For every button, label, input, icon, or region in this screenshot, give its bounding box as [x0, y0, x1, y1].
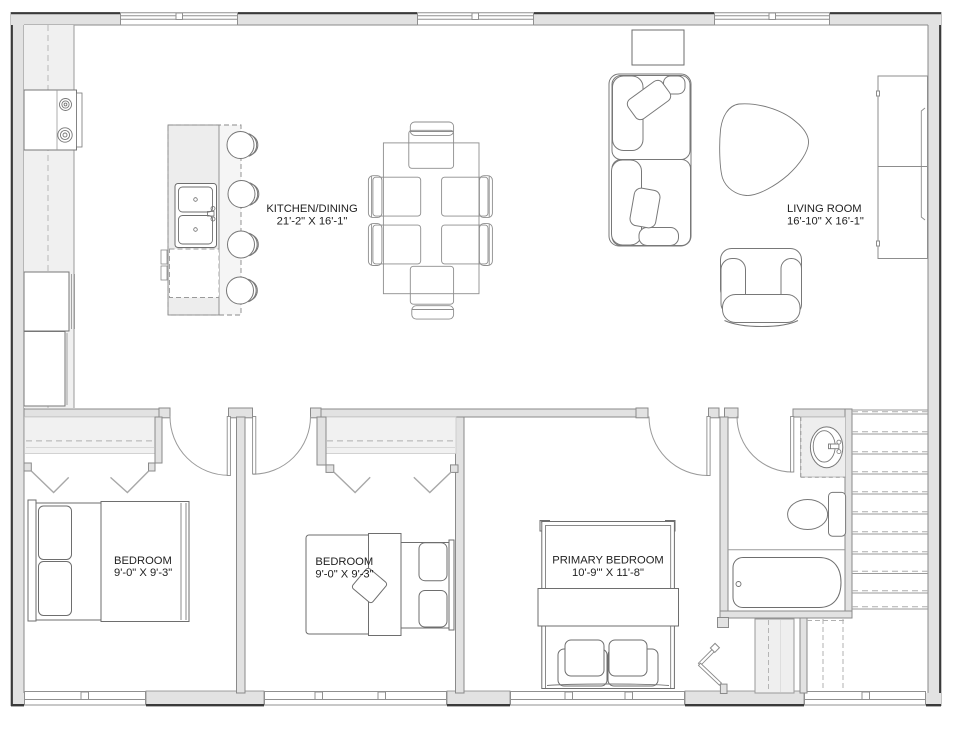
svg-text:10'-9"' X 11'-8": 10'-9"' X 11'-8" — [572, 567, 644, 579]
svg-text:9'-0" X 9'-3": 9'-0" X 9'-3" — [114, 567, 172, 579]
svg-text:21'-2" X 16'-1": 21'-2" X 16'-1" — [277, 216, 348, 228]
svg-text:LIVING ROOM: LIVING ROOM — [787, 203, 862, 215]
svg-text:9'-0" X 9'-3": 9'-0" X 9'-3" — [315, 568, 373, 580]
svg-text:KITCHEN/DINING: KITCHEN/DINING — [266, 203, 357, 215]
svg-text:PRIMARY BEDROOM: PRIMARY BEDROOM — [552, 555, 663, 567]
svg-text:16'-10" X 16'-1": 16'-10" X 16'-1" — [787, 216, 864, 228]
svg-text:BEDROOM: BEDROOM — [114, 555, 172, 567]
svg-text:BEDROOM: BEDROOM — [315, 556, 373, 568]
